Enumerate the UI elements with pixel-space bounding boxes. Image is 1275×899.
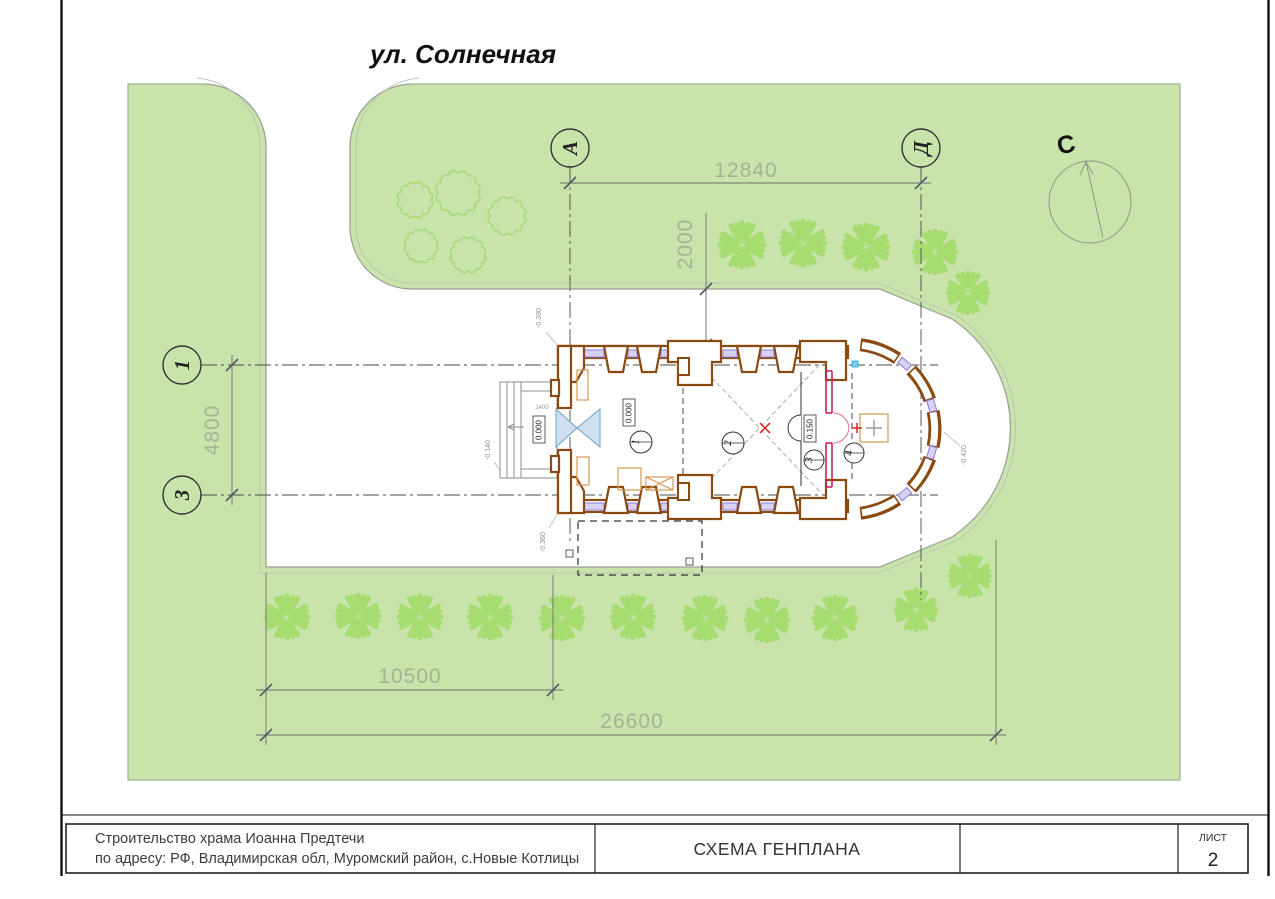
project-address: по адресу: РФ, Владимирская обл, Муромск… [95,851,579,867]
level-zero-porch: 0.000 [535,419,544,440]
room-4: 4 [843,450,855,456]
dim-bottom-outer: 26600 [600,710,663,733]
level-zero-hall: 0.000 [625,402,634,423]
room-3: 3 [803,457,815,464]
dim-left: 4800 [201,405,224,456]
porch-dim-label: 1400 [535,405,549,411]
axis-label-d: Д [909,140,933,157]
street-name: ул. Солнечная [368,39,556,69]
utility-mark [852,361,858,367]
axis-label-a: А [558,141,582,157]
site-plan-drawing: А Д 1 3 12840 2000 4800 10500 26600 [0,0,1275,899]
elev-se: -0.360 [540,532,547,552]
church-plot [266,289,1010,567]
axis-label-1: 1 [170,360,194,371]
sheet-word: ЛИСТ [1199,832,1228,844]
room-1: 1 [630,439,642,445]
genplan-sheet: А Д 1 3 12840 2000 4800 10500 26600 [0,0,1275,899]
dim-top: 12840 [714,159,777,182]
elev-ne: -0.390 [536,308,543,328]
level-solea: 0.150 [806,418,815,439]
dim-offset: 2000 [674,219,697,270]
dim-bottom-inner: 10500 [378,665,441,688]
room-2: 2 [722,440,734,446]
title-block: Строительство храма Иоанна Предтечи по а… [66,824,1248,873]
elev-apse: -0.420 [961,445,968,465]
axis-label-3: 3 [170,490,194,502]
elev-porch: -0.140 [485,440,492,460]
drawing-title: СХЕМА ГЕНПЛАНА [694,839,861,859]
project-name: Строительство храма Иоанна Предтечи [95,831,364,847]
sheet-number: 2 [1208,850,1219,871]
